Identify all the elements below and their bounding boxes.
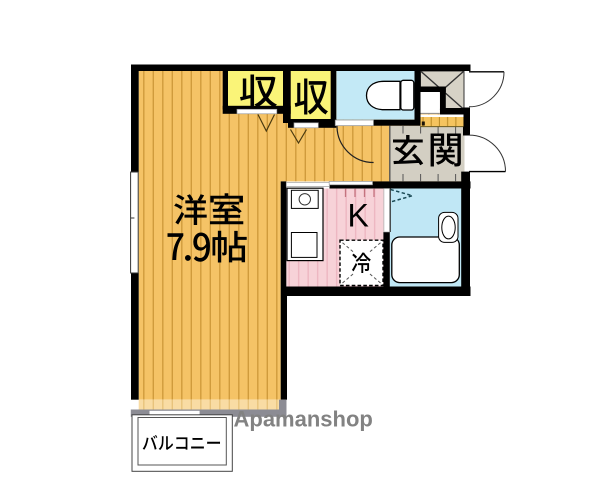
svg-text:K: K xyxy=(348,198,369,234)
svg-text:Apamanshop: Apamanshop xyxy=(234,407,373,432)
